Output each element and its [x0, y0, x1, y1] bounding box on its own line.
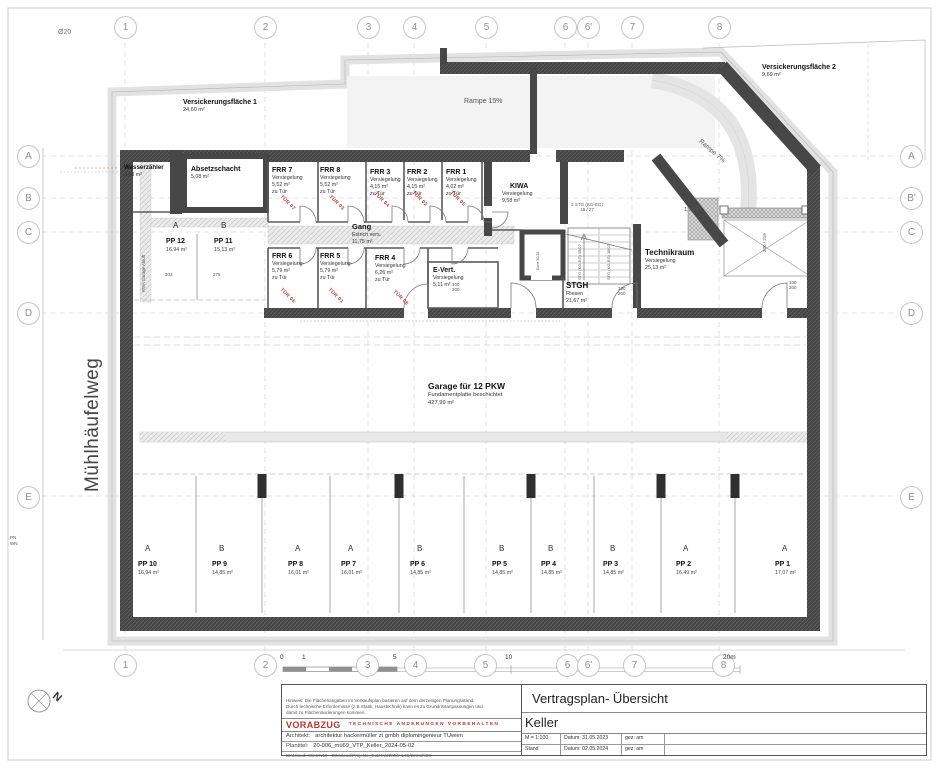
scale-0: 0	[280, 654, 284, 661]
plan-title: Vertragsplan- Übersicht	[522, 685, 926, 713]
grid-row-a-right: A	[900, 145, 923, 168]
north-label: N	[50, 690, 64, 704]
stall-pp11: B PP 11 15,13 m²	[214, 222, 266, 253]
room-wasserzaehler: Wasserzähler 3,53 m²	[124, 164, 164, 179]
meta-row-1: M = 1:100 Datum: 31.05.2023 gez: am	[522, 734, 926, 745]
room-frr5: FRR 5 Versiegelung 5,79 m² zu Tür	[320, 252, 351, 282]
grid-row-d-right: D	[900, 302, 923, 325]
grid-col-5-top: 5	[475, 16, 498, 39]
bimcloud-row: BIMcloud: WinSrv19 - BIMcloud/Projekte_E…	[282, 751, 521, 760]
stall-pp8: A PP 8 16,01 m²	[288, 545, 340, 576]
grid-col-4-bottom: 4	[404, 654, 427, 677]
grid-col-3-top: 3	[357, 16, 380, 39]
grid-col-7-top: 7	[621, 16, 644, 39]
vorabzug-stamp: VORABZUG	[286, 720, 341, 730]
grid-col-6-bottom: 6	[556, 654, 579, 677]
grid-row-d-left: D	[17, 302, 40, 325]
plantitel-row: Plantitel: 20-006_mü69_VTP_Keller_2024-0…	[282, 741, 521, 751]
stall-pp1: A PP 1 17,07 m²	[775, 545, 827, 576]
date-cell-1: Datum: 31.05.2023	[561, 734, 622, 744]
room-frr6: FRR 6 Versiegelung 5,79 m² zu Tür	[272, 252, 303, 282]
grid-row-b-left: B	[17, 187, 40, 210]
title-block: Hinweis: Die Flächenangaben im Verkaufsp…	[281, 684, 927, 756]
dim-303: 303	[165, 272, 173, 277]
grid-col-4-top: 4	[403, 16, 426, 39]
room-frr7: FRR 7 Versiegelung 5,52 m² zu Tür	[272, 166, 303, 196]
grid-row-c-right: C	[900, 221, 923, 244]
door-dim-1: 100 200	[452, 282, 460, 293]
vorbehalt-note: TECHNISCHE ÄNDERUNGEN VORBEHALTEN	[349, 722, 500, 727]
grid-col-8-top: 8	[708, 16, 731, 39]
architekt-row: Architekt: architektur hackermüller zt g…	[282, 732, 521, 741]
floor-plan-sheet: N 1 2 3 4 5 6 6' 7 8 1 2 3 4 5 6 6' 7 8 …	[0, 0, 939, 768]
gez-cell-2: gez: am	[622, 745, 665, 755]
grid-col-2-top: 2	[254, 16, 277, 39]
grid-col-6-top: 6	[554, 16, 577, 39]
stall-pp2: A PP 2 16,49 m²	[676, 545, 728, 576]
title-block-left: Hinweis: Die Flächenangaben im Verkaufsp…	[282, 685, 522, 755]
room-technikraum: Technikraum Versiegelung 25,13 m²	[645, 248, 694, 272]
stall-pp4: B PP 4 14,85 m²	[541, 545, 593, 576]
clearance-label: 1,70 m	[684, 207, 701, 213]
stall-pp7: A PP 7 16,01 m²	[341, 545, 393, 576]
grid-col-6p-top: 6'	[577, 16, 600, 39]
stall-pp9: B PP 9 14,85 m²	[212, 545, 264, 576]
plan-subtitle: Keller	[522, 713, 926, 734]
scale-1: 1	[302, 654, 306, 661]
stall-pp12: A PP 12 16,94 m²	[166, 222, 218, 253]
scale-5: 5	[393, 654, 397, 661]
gez-cell-1: gez: am	[622, 734, 665, 744]
stand-cell: Stand	[522, 745, 561, 755]
meta-row-2: Stand Datum: 02.05.2024 gez: am	[522, 745, 926, 755]
room-frr8: FRR 8 Versiegelung 5,52 m² zu Tür	[320, 166, 351, 196]
versickerung2-label: Versickerungsfläche 2 9,69 m²	[762, 63, 836, 80]
stall-pp3: B PP 3 14,85 m²	[603, 545, 655, 576]
diameter-note: Ø20	[58, 29, 71, 36]
door-dim-2: 100 200	[618, 286, 626, 297]
stall-pp10: A PP 10 16,94 m²	[138, 545, 190, 576]
scale-10: 10	[505, 654, 512, 661]
grid-col-7-bottom: 7	[623, 654, 646, 677]
scale-cell: M = 1:100	[522, 734, 561, 744]
room-frr4: FRR 4 Versiegelung 6,26 m² zu Tür	[375, 254, 406, 284]
lift-shaft	[522, 232, 563, 278]
empty-cell-1	[665, 734, 926, 744]
pn-label: PN	[10, 535, 16, 540]
grid-row-a-left: A	[17, 145, 40, 168]
grid-col-3-bottom: 3	[356, 654, 379, 677]
stairs	[566, 228, 632, 284]
north-compass: N	[28, 690, 64, 712]
shaft-dim: 330 / 219	[762, 233, 767, 252]
versickerung1-label: Versickerungsfläche 1 24,60 m²	[183, 98, 257, 115]
grid-row-b-right: B'	[900, 187, 923, 210]
grid-row-c-left: C	[17, 221, 40, 244]
room-gang: Gang Estrich vers. 11,75 m²	[352, 222, 381, 246]
stall-pp6: B PP 6 14,85 m²	[410, 545, 462, 576]
street-name: Mühlhäufelweg	[82, 358, 104, 492]
wn-label: WN	[10, 541, 18, 546]
title-block-right: Vertragsplan- Übersicht Keller M = 1:100…	[522, 685, 926, 755]
room-absetzschacht: Absetzschacht 5,08 m²	[191, 165, 240, 181]
rwa-label: RWA Garage Abluft	[141, 255, 146, 292]
scale-20: 20m	[723, 654, 736, 661]
grid-col-5-bottom: 5	[474, 654, 497, 677]
hinweis-text: Hinweis: Die Flächenangaben im Verkaufsp…	[282, 685, 521, 718]
grid-row-e-left: E	[17, 486, 40, 509]
grid-row-e-right: E	[900, 486, 923, 509]
lift-label: Kone 50/15	[536, 252, 540, 270]
rampe15-label: Rampe 15%	[464, 98, 503, 105]
vorabzug-row: VORABZUG TECHNISCHE ÄNDERUNGEN VORBEHALT…	[282, 718, 521, 732]
stair-flight-label-2: STG (KG-EG) 18/27	[607, 244, 612, 280]
grid-col-6p-bottom: 6'	[577, 654, 600, 677]
date-cell-2: Datum: 02.05.2024	[561, 745, 622, 755]
empty-cell-2	[665, 745, 926, 755]
grid-col-2-bottom: 2	[254, 654, 277, 677]
door-dim-3: 100 200	[789, 280, 797, 291]
stair-flight-label-1: STG (KG-EG) 18/27	[578, 244, 583, 280]
stall-pp5: B PP 5 14,85 m²	[492, 545, 544, 576]
grid-col-1-top: 1	[114, 16, 137, 39]
room-kiwa: KIWA Versiegelung 9,58 m²	[502, 182, 533, 205]
room-garage: Garage für 12 PKW Fundamentplatte beschi…	[428, 381, 505, 408]
stairs-note: 2 STG (KG-EG) 18 / 27	[562, 202, 612, 213]
grid-col-1-bottom: 1	[114, 654, 137, 677]
entrance-threshold	[688, 198, 810, 276]
scale-bar	[283, 665, 740, 674]
dim-275: 275	[213, 272, 221, 277]
room-stgh: STGH Fliesen 21,67 m²	[566, 281, 588, 305]
